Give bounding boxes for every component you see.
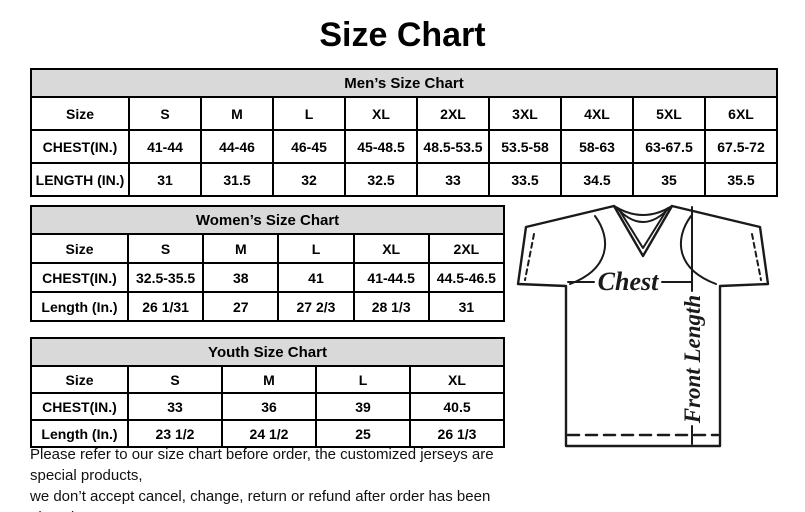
- table-row: SizeSMLXL2XL: [31, 234, 504, 263]
- womens-size-table: Women’s Size ChartSizeSMLXL2XLCHEST(IN.)…: [30, 205, 505, 322]
- value-cell: 33: [128, 393, 222, 420]
- row-label-cell: Size: [31, 234, 128, 263]
- chest-label: Chest: [598, 267, 659, 296]
- tshirt-outline: [518, 206, 768, 446]
- value-cell: 63-67.5: [633, 130, 705, 163]
- value-cell: S: [128, 234, 203, 263]
- disclaimer-line-1: Please refer to our size chart before or…: [30, 444, 530, 486]
- row-label-cell: Size: [31, 97, 129, 130]
- row-label-cell: Size: [31, 366, 128, 393]
- disclaimer-line-2: we don’t accept cancel, change, return o…: [30, 486, 530, 512]
- value-cell: 35: [633, 163, 705, 196]
- value-cell: XL: [345, 97, 417, 130]
- value-cell: 32.5: [345, 163, 417, 196]
- value-cell: 41-44: [129, 130, 201, 163]
- row-label-cell: Length (In.): [31, 420, 128, 447]
- row-label-cell: CHEST(IN.): [31, 393, 128, 420]
- value-cell: M: [201, 97, 273, 130]
- table-row: LENGTH (IN.)3131.53232.53333.534.53535.5: [31, 163, 777, 196]
- value-cell: 34.5: [561, 163, 633, 196]
- row-label-cell: Length (In.): [31, 292, 128, 321]
- value-cell: 36: [222, 393, 316, 420]
- row-label-cell: LENGTH (IN.): [31, 163, 129, 196]
- value-cell: 44.5-46.5: [429, 263, 504, 292]
- table-row: Length (In.)26 1/312727 2/328 1/331: [31, 292, 504, 321]
- value-cell: 32: [273, 163, 345, 196]
- disclaimer-text: Please refer to our size chart before or…: [30, 444, 530, 512]
- value-cell: 46-45: [273, 130, 345, 163]
- table-header-row: Women’s Size Chart: [31, 206, 504, 234]
- value-cell: 38: [203, 263, 278, 292]
- right-armhole-seam: [681, 216, 716, 284]
- value-cell: 31.5: [201, 163, 273, 196]
- value-cell: 67.5-72: [705, 130, 777, 163]
- value-cell: 33.5: [489, 163, 561, 196]
- row-label-cell: CHEST(IN.): [31, 263, 128, 292]
- value-cell: 2XL: [417, 97, 489, 130]
- value-cell: 6XL: [705, 97, 777, 130]
- right-cuff-dashed-line: [752, 234, 761, 280]
- womens-table-title: Women’s Size Chart: [31, 206, 504, 234]
- value-cell: 26 1/31: [128, 292, 203, 321]
- mens-size-table: Men’s Size ChartSizeSMLXL2XL3XL4XL5XL6XL…: [30, 68, 778, 197]
- value-cell: 23 1/2: [128, 420, 222, 447]
- table-header-row: Men’s Size Chart: [31, 69, 777, 97]
- value-cell: 44-46: [201, 130, 273, 163]
- page-title: Size Chart: [0, 16, 805, 55]
- value-cell: 31: [429, 292, 504, 321]
- value-cell: 39: [316, 393, 410, 420]
- table-header-row: Youth Size Chart: [31, 338, 504, 366]
- tshirt-measurement-diagram: Chest Front Length: [510, 194, 804, 470]
- value-cell: 35.5: [705, 163, 777, 196]
- value-cell: 24 1/2: [222, 420, 316, 447]
- value-cell: 5XL: [633, 97, 705, 130]
- value-cell: L: [316, 366, 410, 393]
- value-cell: 58-63: [561, 130, 633, 163]
- value-cell: 3XL: [489, 97, 561, 130]
- front-length-label: Front Length: [680, 295, 705, 424]
- value-cell: 27 2/3: [278, 292, 353, 321]
- row-label-cell: CHEST(IN.): [31, 130, 129, 163]
- value-cell: 45-48.5: [345, 130, 417, 163]
- table-row: SizeSMLXL: [31, 366, 504, 393]
- value-cell: M: [203, 234, 278, 263]
- value-cell: 27: [203, 292, 278, 321]
- value-cell: XL: [410, 366, 504, 393]
- value-cell: 33: [417, 163, 489, 196]
- value-cell: XL: [354, 234, 429, 263]
- table-row: CHEST(IN.)41-4444-4646-4545-48.548.5-53.…: [31, 130, 777, 163]
- youth-size-table: Youth Size ChartSizeSMLXLCHEST(IN.)33363…: [30, 337, 505, 448]
- value-cell: 31: [129, 163, 201, 196]
- value-cell: 25: [316, 420, 410, 447]
- value-cell: 2XL: [429, 234, 504, 263]
- table-row: Length (In.)23 1/224 1/22526 1/3: [31, 420, 504, 447]
- value-cell: 41-44.5: [354, 263, 429, 292]
- table-row: SizeSMLXL2XL3XL4XL5XL6XL: [31, 97, 777, 130]
- left-cuff-dashed-line: [525, 234, 534, 280]
- table-row: CHEST(IN.)33363940.5: [31, 393, 504, 420]
- table-row: CHEST(IN.)32.5-35.5384141-44.544.5-46.5: [31, 263, 504, 292]
- value-cell: 26 1/3: [410, 420, 504, 447]
- size-chart-page: Size Chart Men’s Size ChartSizeSMLXL2XL3…: [0, 0, 805, 512]
- mens-table-title: Men’s Size Chart: [31, 69, 777, 97]
- value-cell: 48.5-53.5: [417, 130, 489, 163]
- value-cell: S: [129, 97, 201, 130]
- value-cell: 28 1/3: [354, 292, 429, 321]
- value-cell: 4XL: [561, 97, 633, 130]
- youth-table-title: Youth Size Chart: [31, 338, 504, 366]
- value-cell: 53.5-58: [489, 130, 561, 163]
- value-cell: L: [273, 97, 345, 130]
- value-cell: L: [278, 234, 353, 263]
- value-cell: 41: [278, 263, 353, 292]
- value-cell: M: [222, 366, 316, 393]
- value-cell: 40.5: [410, 393, 504, 420]
- value-cell: S: [128, 366, 222, 393]
- collar-inner-lines: [614, 206, 672, 248]
- value-cell: 32.5-35.5: [128, 263, 203, 292]
